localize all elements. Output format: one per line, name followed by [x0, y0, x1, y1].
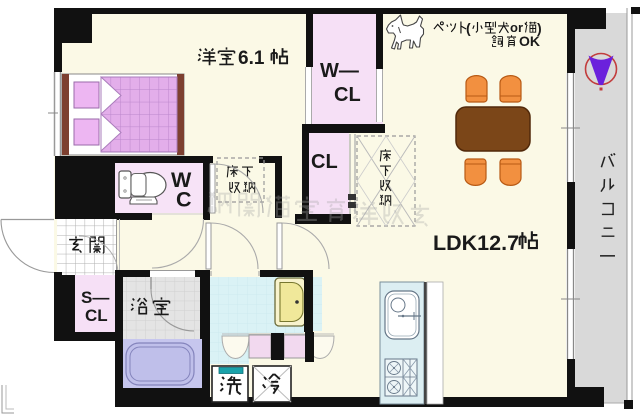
svg-text:CL: CL	[334, 84, 361, 106]
svg-text:S—: S—	[81, 288, 109, 307]
svg-text:OK: OK	[519, 33, 540, 49]
svg-text:(: (	[466, 20, 471, 36]
svg-text:6.1: 6.1	[238, 48, 265, 69]
svg-text:CL: CL	[311, 151, 338, 173]
svg-text:LDK12.7: LDK12.7	[433, 231, 519, 255]
svg-text:CL: CL	[85, 306, 108, 325]
svg-text:C: C	[176, 188, 192, 212]
svg-text:W—: W—	[320, 60, 359, 82]
